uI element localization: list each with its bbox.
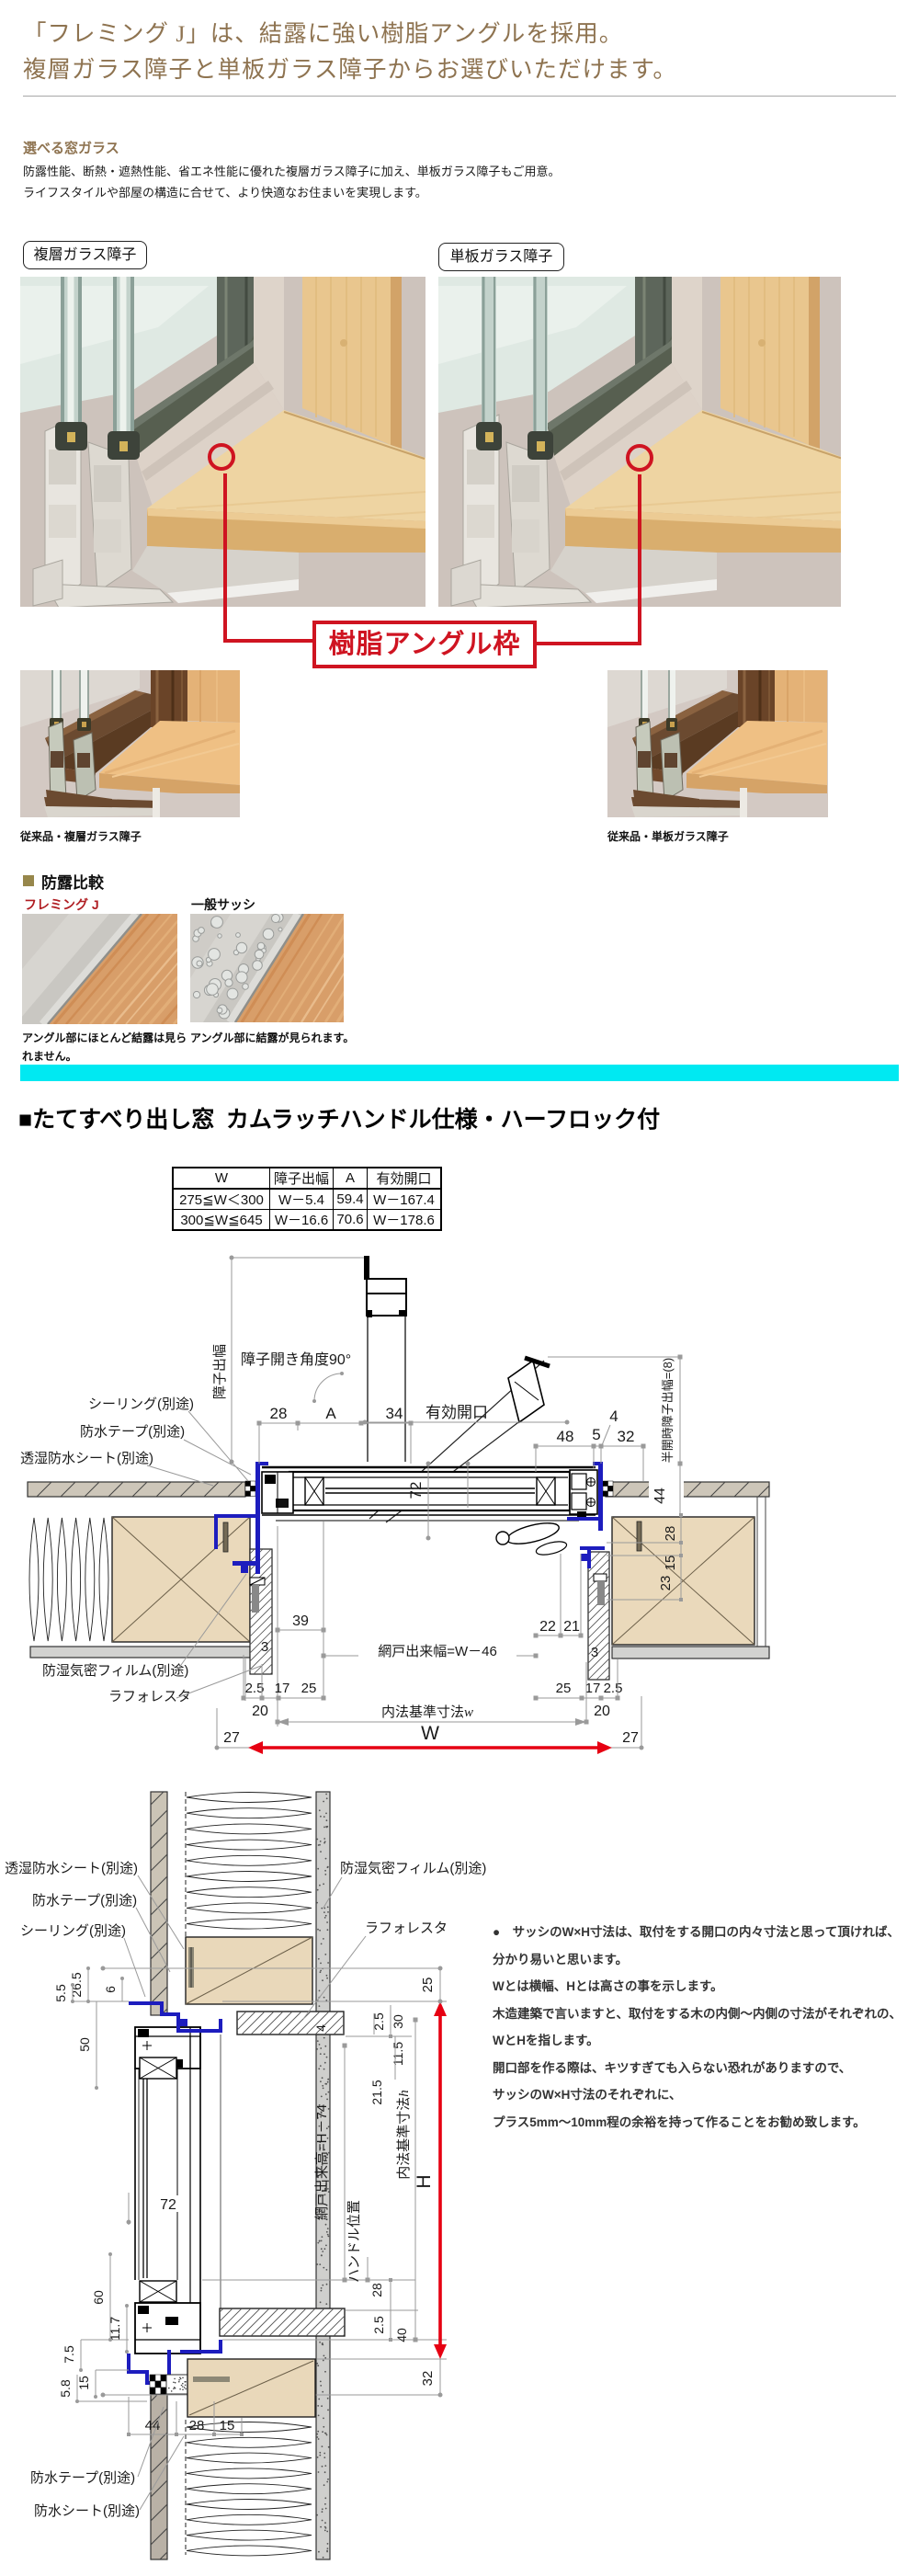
svg-text:21: 21 xyxy=(563,1619,580,1635)
svg-text:5.5: 5.5 xyxy=(53,1984,68,2002)
svg-text:6: 6 xyxy=(103,1986,118,1993)
svg-text:48: 48 xyxy=(557,1428,574,1445)
svg-text:28: 28 xyxy=(663,1526,678,1542)
svg-text:27: 27 xyxy=(223,1730,240,1746)
svg-text:20: 20 xyxy=(252,1704,268,1719)
svg-text:防湿気密フィルム(別途): 防湿気密フィルム(別途) xyxy=(42,1663,188,1679)
svg-text:15: 15 xyxy=(663,1556,678,1571)
svg-text:50: 50 xyxy=(77,2037,92,2052)
svg-text:44: 44 xyxy=(652,1487,668,1504)
svg-text:障子出幅: 障子出幅 xyxy=(211,1344,228,1399)
svg-text:11.5: 11.5 xyxy=(391,2042,405,2066)
svg-text:17: 17 xyxy=(275,1681,290,1696)
svg-text:39: 39 xyxy=(292,1613,309,1629)
svg-text:半開時障子出幅=(8): 半開時障子出幅=(8) xyxy=(661,1358,675,1463)
svg-text:防水シート(別途): 防水シート(別途) xyxy=(34,2503,140,2519)
svg-text:3: 3 xyxy=(591,1645,598,1660)
svg-text:25: 25 xyxy=(301,1681,317,1696)
svg-text:27: 27 xyxy=(622,1730,639,1746)
svg-text:25: 25 xyxy=(420,1978,436,1993)
svg-text:17: 17 xyxy=(585,1681,601,1696)
svg-text:網戸出来高=H－74: 網戸出来高=H－74 xyxy=(314,2104,330,2220)
svg-text:15: 15 xyxy=(220,2418,235,2434)
svg-text:32: 32 xyxy=(618,1428,635,1445)
svg-text:H: H xyxy=(414,2174,435,2188)
svg-text:22: 22 xyxy=(539,1619,556,1635)
svg-text:7.5: 7.5 xyxy=(62,2345,76,2364)
svg-text:72: 72 xyxy=(407,1482,425,1499)
svg-text:防水テープ(別途): 防水テープ(別途) xyxy=(80,1424,185,1440)
svg-text:72: 72 xyxy=(160,2197,176,2213)
svg-text:ハンドル位置: ハンドル位置 xyxy=(346,2200,362,2283)
svg-text:障子開き角度90°: 障子開き角度90° xyxy=(241,1351,351,1368)
svg-text:防水テープ(別途): 防水テープ(別途) xyxy=(32,1893,137,1909)
svg-text:5.8: 5.8 xyxy=(58,2379,73,2398)
svg-text:44: 44 xyxy=(145,2418,161,2434)
svg-text:A: A xyxy=(325,1405,336,1422)
svg-text:5: 5 xyxy=(592,1426,600,1443)
svg-text:4: 4 xyxy=(609,1408,618,1425)
svg-text:W: W xyxy=(421,1723,439,1744)
svg-text:3: 3 xyxy=(261,1639,268,1655)
svg-text:28: 28 xyxy=(270,1405,288,1422)
svg-text:内法基準寸法h: 内法基準寸法h xyxy=(396,2090,412,2180)
svg-text:25: 25 xyxy=(556,1681,572,1696)
svg-text:28: 28 xyxy=(189,2418,205,2434)
svg-text:23: 23 xyxy=(658,1576,674,1591)
svg-text:34: 34 xyxy=(386,1405,403,1422)
svg-text:4: 4 xyxy=(313,2024,328,2032)
svg-text:2.5: 2.5 xyxy=(604,1681,623,1696)
svg-text:有効開口: 有効開口 xyxy=(425,1404,488,1421)
svg-text:15: 15 xyxy=(76,2376,91,2390)
svg-text:60: 60 xyxy=(91,2290,106,2305)
svg-text:40: 40 xyxy=(394,2328,409,2342)
svg-text:2.5: 2.5 xyxy=(371,2316,386,2334)
svg-text:ラフォレスタ: ラフォレスタ xyxy=(365,1921,448,1936)
svg-text:11.7: 11.7 xyxy=(108,2317,122,2341)
svg-text:透湿防水シート(別途): 透湿防水シート(別途) xyxy=(20,1451,153,1466)
svg-text:28: 28 xyxy=(369,2283,384,2297)
svg-text:20: 20 xyxy=(594,1704,610,1719)
svg-text:防水テープ(別途): 防水テープ(別途) xyxy=(30,2470,135,2486)
svg-text:シーリング(別途): シーリング(別途) xyxy=(88,1396,194,1412)
svg-text:32: 32 xyxy=(420,2371,436,2387)
svg-text:網戸出来幅=W－46: 網戸出来幅=W－46 xyxy=(378,1644,497,1659)
svg-text:2.5: 2.5 xyxy=(245,1681,265,1696)
svg-text:防湿気密フィルム(別途): 防湿気密フィルム(別途) xyxy=(340,1861,486,1876)
svg-text:シーリング(別途): シーリング(別途) xyxy=(20,1923,126,1939)
svg-text:ラフォレスタ: ラフォレスタ xyxy=(108,1689,191,1704)
svg-text:30: 30 xyxy=(391,2014,405,2029)
svg-text:21.5: 21.5 xyxy=(369,2080,384,2104)
svg-text:透湿防水シート(別途): 透湿防水シート(別途) xyxy=(5,1861,138,1876)
svg-text:内法基準寸法w: 内法基準寸法w xyxy=(381,1704,473,1720)
svg-text:2.5: 2.5 xyxy=(371,2012,386,2031)
